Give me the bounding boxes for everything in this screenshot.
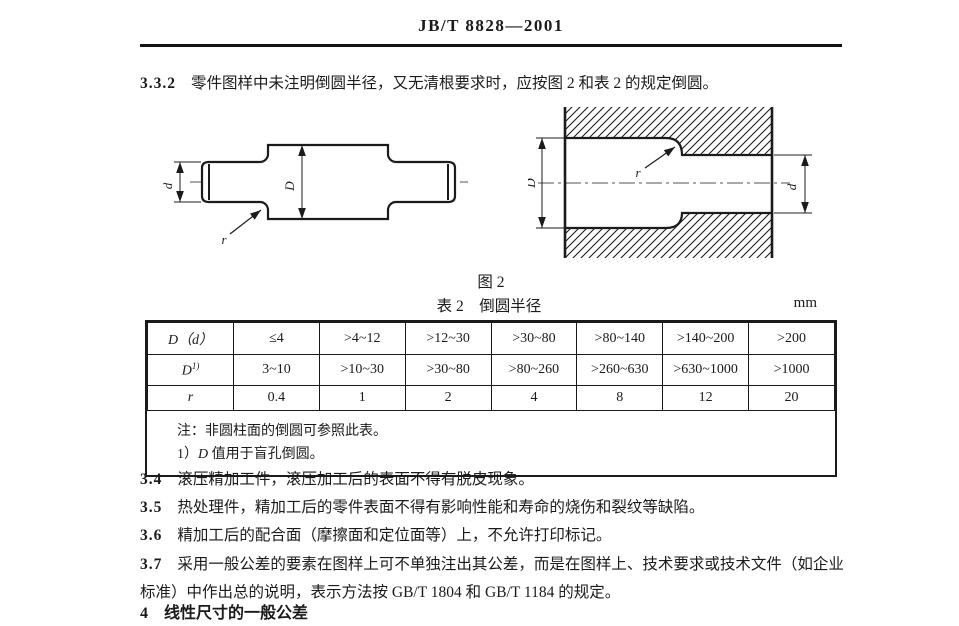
cell: >260~630 [577, 355, 663, 386]
unit-label: mm [794, 295, 817, 312]
radius-label-r: r [635, 165, 641, 180]
table-grid: D（d） ≤4 >4~12 >12~30 >30~80 >80~140 >140… [147, 322, 835, 411]
cell: >200 [749, 323, 835, 355]
cell: ≤4 [234, 323, 320, 355]
cell: >12~30 [405, 323, 491, 355]
cell: >80~260 [491, 355, 577, 386]
dimension-label-D: D [528, 178, 538, 189]
table-footnote: 1）D 值用于盲孔倒圆。 [177, 443, 825, 466]
table-caption-row: 表 2 倒圆半径 mm [145, 294, 833, 316]
cell: >30~80 [405, 355, 491, 386]
document-page: JB/T 8828—2001 3.3.2零件图样中未注明倒圆半径，又无清根要求时… [0, 0, 959, 626]
radius-leader-line [230, 210, 261, 234]
row-header: D（d） [148, 323, 234, 355]
clause-3-6: 3.6精加工后的配合面（摩擦面和定位面等）上，不允许打印标记。 [140, 525, 850, 546]
blind-hole-fillet-drawing: D d r [528, 95, 844, 270]
figure-caption: 图 2 [140, 270, 842, 292]
cell: >10~30 [319, 355, 405, 386]
header-rule [140, 44, 842, 47]
cell: >140~200 [663, 323, 749, 355]
clause-3-7: 3.7采用一般公差的要素在图样上可不单独注出其公差，而是在图样上、技术要求或技术… [140, 551, 844, 606]
radius-label-r: r [221, 232, 227, 247]
table-note: 注：非圆柱面的倒圆可参照此表。 [177, 420, 825, 443]
cell: 2 [405, 386, 491, 411]
cell: 0.4 [234, 386, 320, 411]
shaft-outline [202, 145, 455, 219]
dimension-label-d: d [160, 182, 175, 189]
radius-leader-line [645, 147, 675, 168]
cell: >4~12 [319, 323, 405, 355]
hatch-region-bottom [565, 213, 772, 258]
cell: 4 [491, 386, 577, 411]
table-row: D（d） ≤4 >4~12 >12~30 >30~80 >80~140 >140… [148, 323, 835, 355]
row-header: r [148, 386, 234, 411]
cell: >30~80 [491, 323, 577, 355]
clause-4-heading: 4线性尺寸的一般公差 [140, 603, 850, 624]
clause-3-4: 3.4滚压精加工件，滚压加工后的表面不得有脱皮现象。 [140, 469, 850, 490]
dimension-label-d: d [784, 183, 799, 190]
fillet-radius-table: D（d） ≤4 >4~12 >12~30 >30~80 >80~140 >140… [145, 320, 837, 477]
cell: 3~10 [234, 355, 320, 386]
cell: >630~1000 [663, 355, 749, 386]
table-caption: 表 2 倒圆半径 [437, 298, 542, 315]
shaft-fillet-drawing: d D r [150, 98, 472, 268]
row-header: D1) [148, 355, 234, 386]
clause-3-3-2: 3.3.2零件图样中未注明倒圆半径，又无清根要求时，应按图 2 和表 2 的规定… [140, 73, 850, 94]
cell: >1000 [749, 355, 835, 386]
cell: 20 [749, 386, 835, 411]
clause-text: 零件图样中未注明倒圆半径，又无清根要求时，应按图 2 和表 2 的规定倒圆。 [191, 75, 718, 92]
table-notes: 注：非圆柱面的倒圆可参照此表。 1）D 值用于盲孔倒圆。 [147, 411, 835, 475]
table-row: r 0.4 1 2 4 8 12 20 [148, 386, 835, 411]
clause-3-5: 3.5热处理件，精加工后的零件表面不得有影响性能和寿命的烧伤和裂纹等缺陷。 [140, 497, 850, 518]
hatch-region-top [565, 107, 772, 155]
cell: 1 [319, 386, 405, 411]
clause-number: 3.3.2 [140, 75, 176, 92]
cell: >80~140 [577, 323, 663, 355]
standard-number-header: JB/T 8828—2001 [140, 16, 842, 36]
dimension-label-D: D [282, 181, 297, 192]
cell: 12 [663, 386, 749, 411]
table-row: D1) 3~10 >10~30 >30~80 >80~260 >260~630 … [148, 355, 835, 386]
cell: 8 [577, 386, 663, 411]
